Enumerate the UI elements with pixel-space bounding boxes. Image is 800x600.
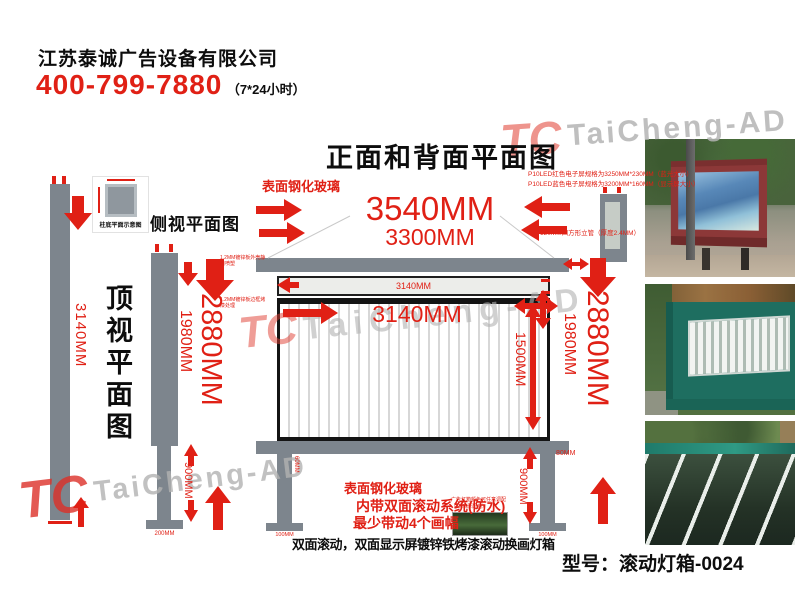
left-leg [277,454,292,523]
right-leg-base [529,523,566,531]
inner-width-dim: 3300MM [360,224,500,251]
led-spec-notes: P10LED红色电子屏规格为3250MM*230MM（蓝光大小） P10LED蓝… [528,170,698,190]
photo-glass-slats [645,454,795,545]
photo-street-pole [686,139,695,260]
glass-note-top: 表面钢化玻璃 [262,176,340,195]
column-base-detail: 柱底平面示意图 [92,176,149,233]
photo-scroll-slats [688,315,790,377]
front-box-height-dim: 1980MM [560,313,578,375]
page-title: 正面和背面平面图 [326,136,558,175]
frame-count-note: 最少带动4个画幅 [353,513,459,533]
photo-street-lightbox [645,139,795,277]
side-view-base [146,520,183,529]
model-number: 型号：滚动灯箱-0024 [562,549,744,576]
frame-depth-dim: 80MM [556,450,575,457]
summary-note: 双面滚动，双面显示屏镀锌铁烤漆滚动换画灯箱 [292,534,555,553]
phone-row: 400-799-7880 （7*24小时） [36,69,306,101]
company-name: 江苏泰诚广告设备有限公司 [38,44,278,71]
right-leg [540,454,555,523]
photo-box-leg [741,248,749,270]
led-strip: 3140MM [277,276,550,296]
total-width-dim: 3540MM [350,190,510,228]
side-box-height-dim: 1980MM [176,310,194,372]
frame-bottom-bar [256,441,569,454]
side-view-body [151,253,178,446]
photo-pavement [645,255,795,277]
side-leg-height-dim: 900MM [182,462,194,499]
pole-note: 120MM四方形立管（厚度2.4MM） [540,227,640,237]
detail-caption: 柱底平面示意图 [93,220,148,229]
led-strip-dim: 3140MM [396,281,431,291]
top-view-column-bar [50,184,70,520]
photo-foliage [645,421,795,443]
column-cross-section [105,184,137,217]
detail-dim-line [98,187,100,213]
leg-width-dim: 60MM [293,456,299,473]
screen-height-dim: 1500MM [513,332,529,386]
front-leg-height-dim: 900MM [517,468,529,505]
service-hours: （7*24小时） [227,82,306,97]
panel-note-1: 1.2MM镀锌板外壳静电喷塑 [220,255,266,267]
phone-number: 400-799-7880 [36,69,222,100]
detail-dim-line [107,179,135,181]
top-view-length-dim: 3140MM [72,303,89,367]
side-total-height-dim: 2880MM [194,293,227,406]
photo-glass-closeup [645,421,795,545]
screen-width-dim: 3140MM [352,301,482,328]
left-leg-base [266,523,303,531]
color-note: 广告灯箱颜色可任意调配（4MM厚配色） [451,497,509,510]
led-spec-line2: P10LED蓝色电子屏规格为3200MM*160MM（显示屏大小） [528,180,698,190]
flyer-page: 江苏泰诚广告设备有限公司 400-799-7880 （7*24小时） 正面和背面… [0,0,800,600]
panel-note-2: 1.2MM镀锌板边框烤漆处理 [220,297,266,309]
photo-lightbox-frame [666,302,795,399]
led-spec-line1: P10LED红色电子屏规格为3250MM*230MM（蓝光大小） [528,170,698,180]
photo-teal-lightbox [645,284,795,415]
photo-teal-bar [645,443,795,454]
photo-box-leg [702,248,710,270]
side-base-dim: 200MM [142,531,187,537]
front-total-height-dim: 2880MM [580,290,614,407]
glass-note-bottom: 表面钢化玻璃 [344,478,422,497]
top-view-label: 顶视平面图 [98,284,137,444]
side-view-label: 侧视平面图 [150,210,240,235]
frame-top-bar [256,258,569,272]
side-view-leg [157,446,171,520]
pole-panel [605,202,620,249]
photo-frame-bottom [666,399,795,409]
